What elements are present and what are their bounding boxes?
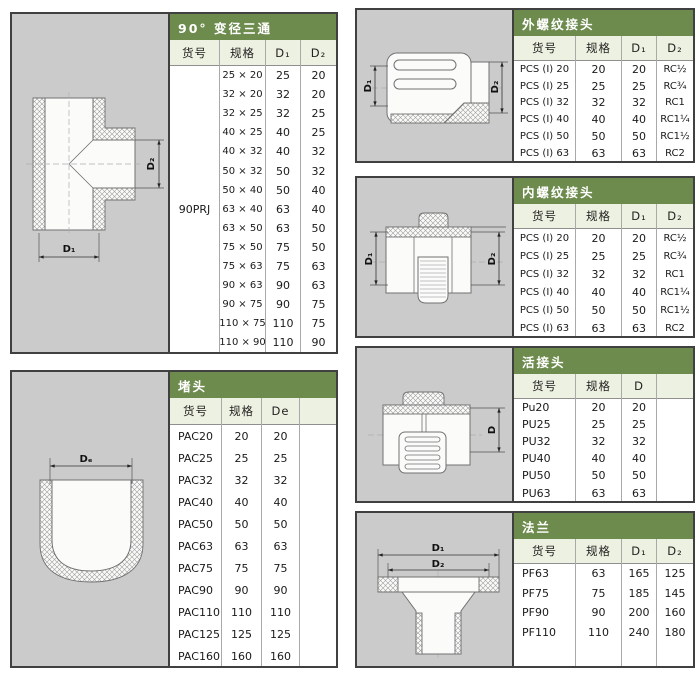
cell-code: PAC63 [170,535,221,557]
dim-label-d1: D₁ [364,253,375,266]
cell-spec: 50 [576,128,621,145]
column-d2: D₂ 202025253232404050506363757590 [301,40,336,352]
cell-code: PCS (I) 40 [514,283,575,301]
drawing-panel-union: D [357,348,514,501]
union-diagram: D [357,348,512,501]
cell-de: 50 [262,513,299,535]
cell-spec: 63 [576,564,621,584]
section-title-reducing-tee: 90° 变径三通 [170,14,336,40]
col-header-code: 货号 [514,36,575,61]
col-header-code: 货号 [170,398,221,425]
col-header-d2: D₂ [657,539,693,564]
cell-d1: 50 [622,301,656,319]
cell-code: PCS (I) 63 [514,319,575,337]
dim-label-d1: D₁ [63,244,76,255]
col-header-d1: D₁ [622,36,656,61]
catalog-page: D₂ D₁ 90° 变径三通 货号 90PRJ 规格 25 × 2032 × [0,0,700,676]
cell-d: 20 [622,399,656,416]
cell-d: 32 [622,433,656,450]
cell-d1: 110 [266,314,300,333]
cell-spec: 25 × 20 [220,66,265,85]
cell-d1: 32 [266,85,300,104]
cell-d1: 63 [266,219,300,238]
cell-d1: 32 [622,95,656,112]
cell-de: 125 [262,623,299,645]
col-header-d1: D₁ [266,40,300,66]
cell-spec: 75 × 63 [220,257,265,276]
reducing-tee-diagram: D₂ D₁ [12,14,168,352]
cell-code: PAC25 [170,447,221,469]
cell-spec: 110 × 90 [220,333,265,352]
drawing-panel-male-adapter: D₁ D₂ [357,10,514,161]
item-code: 90PRJ [170,66,219,352]
cell-de: 32 [262,469,299,491]
col-header-code: 货号 [514,204,575,229]
cap-table: 货号 PAC20PAC25PAC32PAC40PAC50PAC63PAC75PA… [170,398,336,666]
male-adapter-table: 货号 PCS (I) 20PCS (I) 25PCS (I) 32PCS (I)… [514,36,693,161]
column-code: 货号 PF63PF75PF90PF110 [514,539,576,666]
col-header-spec: 规格 [576,539,621,564]
section-title-union: 活接头 [514,348,693,374]
cell-d2: RC1½ [657,301,693,319]
union-drawing: D [368,392,505,473]
cell-d1: 63 [622,319,656,337]
col-header-d: D [622,374,656,399]
cell-code: PCS (I) 32 [514,265,575,283]
cell-code: PAC110 [170,601,221,623]
col-header-code: 货号 [514,539,575,564]
cell-d1: 25 [622,247,656,265]
cell-d2: 25 [301,123,336,142]
col-header-d2: D₂ [657,204,693,229]
drawing-panel-reducing-tee: D₂ D₁ [12,14,170,352]
cell-d1: 50 [266,161,300,180]
dim-label-d2: D₂ [490,81,501,94]
dim-label-d2: D₂ [432,559,445,570]
cell-spec: 75 × 50 [220,238,265,257]
column-d2: D₂ RC½RC¾RC1RC1¼RC1½RC2 [657,204,693,336]
cell-spec: 20 [576,229,621,247]
cell-code: PCS (I) 63 [514,145,575,162]
column-code: 货号 PCS (I) 20PCS (I) 25PCS (I) 32PCS (I)… [514,204,576,336]
column-spec: 规格 202532405063 [576,374,622,501]
cell-spec: 110 [222,601,261,623]
cell-d2: 180 [657,623,693,643]
section-title-female-adapter: 内螺纹接头 [514,178,693,204]
cell-spec: 90 × 75 [220,295,265,314]
col-header-spec: 规格 [576,36,621,61]
cell-spec: 25 [576,247,621,265]
cell-spec: 110 × 75 [220,314,265,333]
cell-spec: 50 × 40 [220,181,265,200]
column-code: 货号 PAC20PAC25PAC32PAC40PAC50PAC63PAC75PA… [170,398,222,666]
cell-d1: 75 [266,238,300,257]
cell-spec: 63 [222,535,261,557]
cell-spec: 90 [576,603,621,623]
cell-d2: RC¾ [657,78,693,95]
dim-label-d2: D₂ [487,253,498,266]
column-code: 货号 PCS (I) 20PCS (I) 25PCS (I) 32PCS (I)… [514,36,576,161]
cell-spec: 40 × 25 [220,123,265,142]
cell-d2: RC1¼ [657,111,693,128]
cell-de: 110 [262,601,299,623]
cell-code: PAC75 [170,557,221,579]
cell-spec: 32 × 25 [220,104,265,123]
reducing-tee-table: 货号 90PRJ 规格 25 × 2032 × 2032 × 2540 × 25… [170,40,336,352]
cell-d2: RC2 [657,145,693,162]
cell-code: PAC90 [170,579,221,601]
cell-d2: 50 [301,238,336,257]
drawing-panel-female-adapter: D₁ D₂ [357,178,514,336]
cap-diagram: Dₑ [12,372,168,666]
cell-de: 40 [262,491,299,513]
cell-code: PF75 [514,584,575,604]
cell-d1: 40 [622,283,656,301]
cell-d1: 25 [266,66,300,85]
section-cap: Dₑ 堵头 货号 PAC20PAC25PAC32PAC40PAC50PAC63P… [10,370,338,668]
male-adapter-diagram: D₁ D₂ [357,10,512,161]
cell-spec: 50 [576,301,621,319]
cell-spec: 32 [576,433,621,450]
section-male-threaded-adapter: D₁ D₂ 外螺纹接头 货号 PCS (I) 20PCS (I) 25PCS (… [355,8,695,163]
cell-spec: 90 [222,579,261,601]
cell-code: PCS (I) 50 [514,301,575,319]
col-header-spec: 规格 [576,204,621,229]
section-title-cap: 堵头 [170,372,336,398]
cell-code: PCS (I) 25 [514,78,575,95]
cell-d2: 20 [301,85,336,104]
cell-d1: 90 [266,276,300,295]
cell-code: PCS (I) 50 [514,128,575,145]
column-spec: 规格 637590110 [576,539,622,666]
cell-spec: 25 [576,78,621,95]
cell-code: PCS (I) 25 [514,247,575,265]
cell-d: 25 [622,416,656,433]
col-header-code: 货号 [170,40,219,66]
cell-code: PF110 [514,623,575,643]
cell-d2: 32 [301,161,336,180]
female-adapter-diagram: D₁ D₂ [357,178,512,336]
drawing-panel-flange: D₁ D₂ [357,513,514,666]
cell-d2: 90 [301,333,336,352]
cell-code: PAC125 [170,623,221,645]
cell-d: 50 [622,467,656,484]
cell-spec: 25 [222,447,261,469]
cell-spec: 63 [576,145,621,162]
cell-de: 90 [262,579,299,601]
column-d2: D₂ 125145160180 [657,539,693,666]
cell-spec: 32 [222,469,261,491]
cell-spec: 32 × 20 [220,85,265,104]
cell-spec: 50 [576,467,621,484]
cell-de: 75 [262,557,299,579]
cell-spec: 63 × 50 [220,219,265,238]
section-title-flange: 法兰 [514,513,693,539]
cell-d1: 40 [622,111,656,128]
cell-d1: 63 [266,200,300,219]
column-d1: D₁ 202532405063 [622,36,657,161]
col-header-code: 货号 [514,374,575,399]
column-spec: 规格 202532405063 [576,204,622,336]
cell-code: PCS (I) 40 [514,111,575,128]
cell-d2: 75 [301,314,336,333]
cell-d2: 125 [657,564,693,584]
cell-spec: 40 [576,283,621,301]
column-spec: 规格 25 × 2032 × 2032 × 2540 × 2540 × 3250… [220,40,266,352]
cell-code: PAC20 [170,425,221,447]
cell-de: 25 [262,447,299,469]
cell-d2: 63 [301,276,336,295]
column-d2: D₂ RC½RC¾RC1RC1¼RC1½RC2 [657,36,693,161]
dim-label-d1: D₁ [432,543,445,554]
cell-spec: 40 [576,111,621,128]
col-header-d1: D₁ [622,539,656,564]
cell-spec: 50 [222,513,261,535]
tee-cross-section: D₂ D₁ [26,92,164,262]
cell-d1: 90 [266,295,300,314]
cell-code: PCS (I) 32 [514,95,575,112]
cell-spec: 160 [222,645,261,667]
cell-d1: 20 [622,229,656,247]
cell-d1: 50 [266,181,300,200]
cell-de: 63 [262,535,299,557]
cell-code: PAC32 [170,469,221,491]
cell-d2: RC½ [657,229,693,247]
male-adapter-drawing: D₁ D₂ [363,53,508,123]
column-spec: 规格 2025324050637590110125160 [222,398,262,666]
cell-d: 40 [622,450,656,467]
section-union: D 活接头 货号 Pu20PU25PU32PU40PU50PU63 规格 202… [355,346,695,503]
col-header-spec: 规格 [576,374,621,399]
cell-d2: 32 [301,142,336,161]
flange-table: 货号 PF63PF75PF90PF110 规格 637590110 D₁ 165… [514,539,693,666]
col-header-d2: D₂ [301,40,336,66]
cell-d2: RC½ [657,61,693,78]
cell-d2: RC2 [657,319,693,337]
cell-d2: 40 [301,181,336,200]
col-header-spec: 规格 [222,398,261,425]
cell-d1: 40 [266,142,300,161]
col-header-empty [657,374,693,399]
cell-spec: 40 [576,450,621,467]
cell-spec: 32 [576,265,621,283]
cell-d2: RC1¼ [657,283,693,301]
col-header-de: De [262,398,299,425]
col-header-d2: D₂ [657,36,693,61]
column-d: D 202532405063 [622,374,657,501]
female-adapter-table: 货号 PCS (I) 20PCS (I) 25PCS (I) 32PCS (I)… [514,204,693,336]
cell-code: PU32 [514,433,575,450]
cell-code: PU63 [514,484,575,501]
cell-d1: 200 [622,603,656,623]
cell-d1: 40 [266,123,300,142]
cell-code: PF63 [514,564,575,584]
cell-spec: 75 [222,557,261,579]
cell-d1: 63 [622,145,656,162]
dim-label-de: Dₑ [79,454,92,465]
col-header-spec: 规格 [220,40,265,66]
flange-drawing: D₁ D₂ [378,543,499,661]
cell-spec: 63 [576,484,621,501]
cell-d2: RC¾ [657,247,693,265]
column-d1: D₁ 165185200240 [622,539,657,666]
column-spec: 规格 202532405063 [576,36,622,161]
cell-d2: 145 [657,584,693,604]
cell-d1: 75 [266,257,300,276]
cell-code: PCS (I) 20 [514,61,575,78]
column-empty [300,398,336,666]
cell-d2: 160 [657,603,693,623]
cell-d1: 240 [622,623,656,643]
drawing-panel-cap: Dₑ [12,372,170,666]
column-code: 货号 90PRJ [170,40,220,352]
section-title-male-adapter: 外螺纹接头 [514,10,693,36]
union-table: 货号 Pu20PU25PU32PU40PU50PU63 规格 202532405… [514,374,693,501]
cell-spec: 20 [222,425,261,447]
cell-code: PAC160 [170,645,221,667]
cell-d2: RC1½ [657,128,693,145]
cell-d2: RC1 [657,265,693,283]
column-d1: D₁ 202532405063 [622,204,657,336]
cell-spec: 75 [576,584,621,604]
cell-de: 20 [262,425,299,447]
female-adapter-drawing: D₁ D₂ [364,213,506,303]
column-code: 货号 Pu20PU25PU32PU40PU50PU63 [514,374,576,501]
cell-d1: 165 [622,564,656,584]
cell-spec: 50 × 32 [220,161,265,180]
cell-d1: 185 [622,584,656,604]
cell-d1: 20 [622,61,656,78]
cell-code: PAC50 [170,513,221,535]
col-header-empty [300,398,336,425]
cell-spec: 25 [576,416,621,433]
section-flange: D₁ D₂ 法兰 货号 [355,511,695,668]
cell-spec: 63 [576,319,621,337]
cell-d2: 20 [301,66,336,85]
cell-d1: 25 [622,78,656,95]
cell-code: Pu20 [514,399,575,416]
cell-code: PF90 [514,603,575,623]
cell-spec: 32 [576,95,621,112]
cell-d1: 32 [266,104,300,123]
cell-d1: 110 [266,333,300,352]
cell-d2: 40 [301,200,336,219]
cell-d2: RC1 [657,95,693,112]
column-d1: D₁ 25323240405050636375759090110110 [266,40,301,352]
cell-de: 160 [262,645,299,667]
section-female-threaded-adapter: D₁ D₂ 内螺纹接头 货号 PCS (I) 20PCS (I) 25PCS (… [355,176,695,338]
section-reducing-tee: D₂ D₁ 90° 变径三通 货号 90PRJ 规格 25 × 2032 × [10,12,338,354]
cell-code: PU25 [514,416,575,433]
cell-spec: 20 [576,399,621,416]
cap-cross-section: Dₑ [40,454,143,582]
cell-code: PU40 [514,450,575,467]
cell-code: PCS (I) 20 [514,229,575,247]
cell-spec: 40 × 32 [220,142,265,161]
cell-spec: 110 [576,623,621,643]
cell-d1: 50 [622,128,656,145]
cell-spec: 125 [222,623,261,645]
cell-d2: 63 [301,257,336,276]
flange-diagram: D₁ D₂ [357,513,512,666]
cell-d2: 50 [301,219,336,238]
column-empty [657,374,693,501]
cell-spec: 20 [576,61,621,78]
dim-label-d1: D₁ [363,80,374,93]
cell-d2: 25 [301,104,336,123]
cell-spec: 40 [222,491,261,513]
dim-label-d2: D₂ [146,158,157,171]
col-header-d1: D₁ [622,204,656,229]
dim-label-d: D [487,426,498,434]
cell-d2: 75 [301,295,336,314]
cell-code: PU50 [514,467,575,484]
cell-spec: 90 × 63 [220,276,265,295]
column-de: De 2025324050637590110125160 [262,398,300,666]
cell-code: PAC40 [170,491,221,513]
cell-spec: 63 × 40 [220,200,265,219]
cell-d1: 32 [622,265,656,283]
cell-d: 63 [622,484,656,501]
